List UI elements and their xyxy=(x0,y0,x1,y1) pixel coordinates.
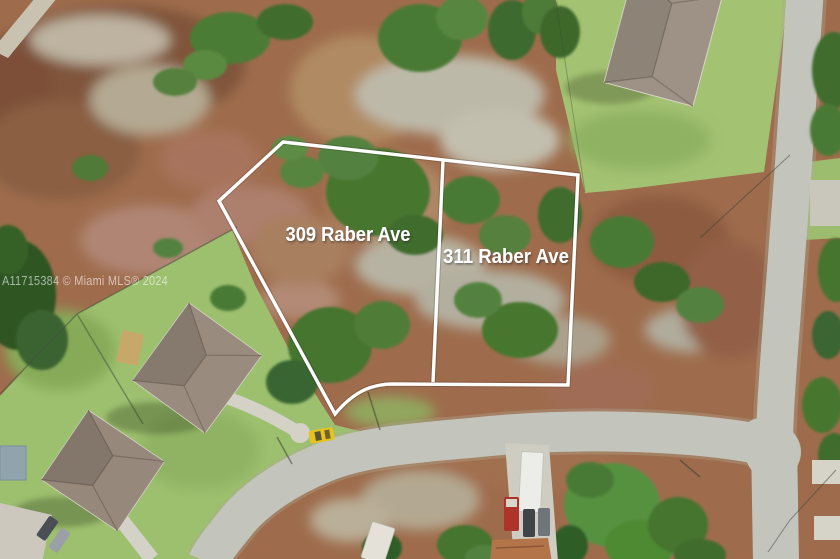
white-rv xyxy=(518,451,543,512)
driveway-right-1 xyxy=(810,180,840,226)
shed xyxy=(0,446,26,480)
watermark-text: A11715384 © Miami MLS® 2024 xyxy=(2,274,168,288)
driveway-right-3 xyxy=(814,516,840,540)
aerial-photo-canvas: 309 Raber Ave 311 Raber Ave A11715384 © … xyxy=(0,0,840,559)
lot-label-311: 311 Raber Ave xyxy=(443,246,569,268)
red-truck xyxy=(504,497,519,531)
lot-label-309: 309 Raber Ave xyxy=(286,224,411,246)
aerial-photo: 309 Raber Ave 311 Raber Ave A11715384 © … xyxy=(0,0,840,559)
